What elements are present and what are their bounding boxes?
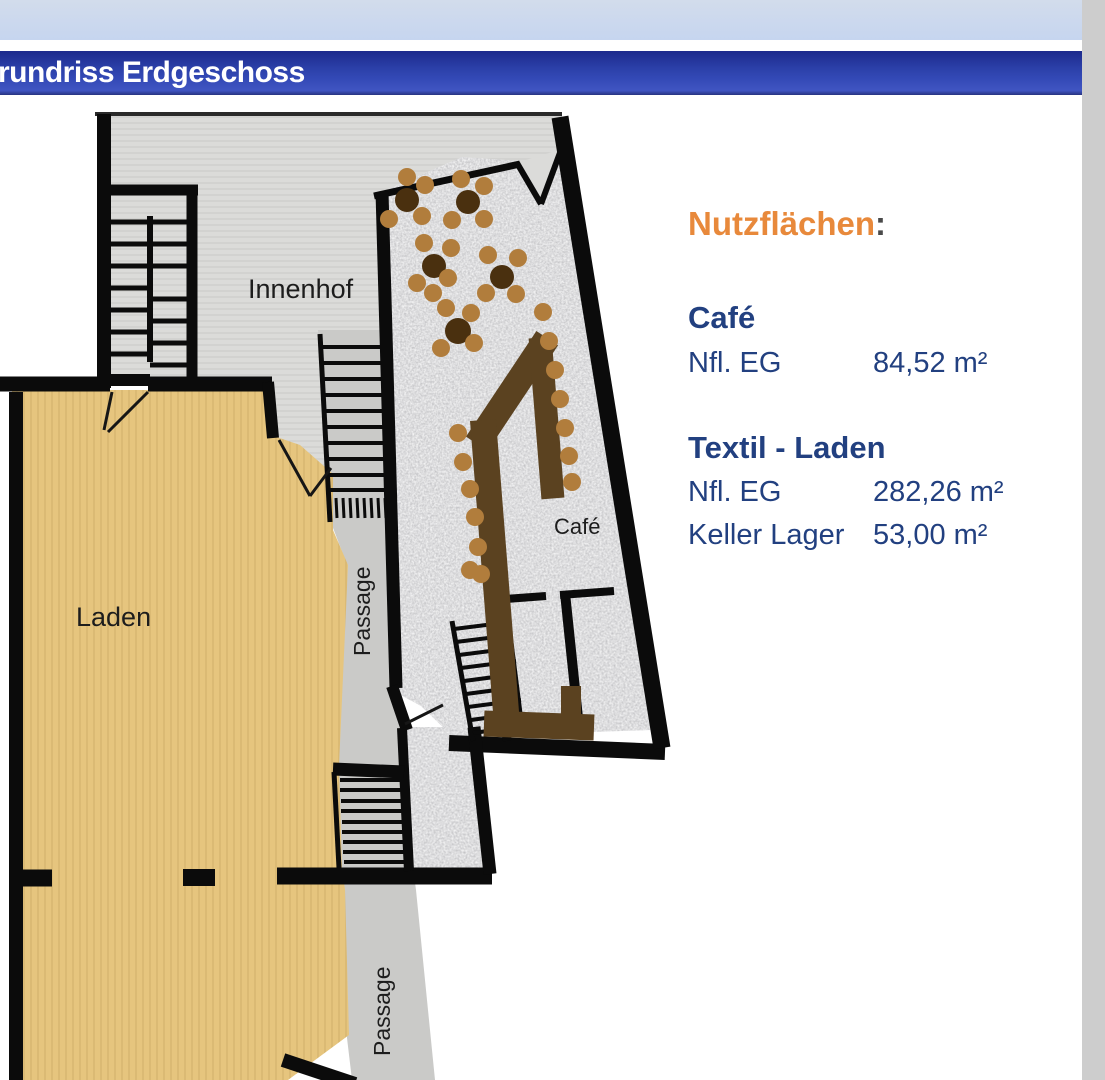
document-page: rundriss Erdgeschoss <box>0 0 1105 1080</box>
area-row: Nfl. EG 84,52 m² <box>688 347 781 380</box>
area-label: Nfl. EG <box>688 347 781 379</box>
shop-area <box>12 390 349 1080</box>
label-passage-upper: Passage <box>349 566 375 656</box>
panel-heading-colon: : <box>875 205 886 242</box>
area-row: Keller Lager 53,00 m² <box>688 519 844 552</box>
area-row: Nfl. EG 282,26 m² <box>688 476 781 509</box>
area-label: Keller Lager <box>688 519 844 551</box>
area-label: Nfl. EG <box>688 476 781 508</box>
area-value: 53,00 m² <box>873 519 987 552</box>
section-title-textil-laden: Textil - Laden <box>688 430 886 466</box>
section-title-cafe: Café <box>688 300 755 336</box>
right-page-margin <box>1082 0 1105 1080</box>
panel-heading-text: Nutzflächen <box>688 205 875 242</box>
label-passage-lower: Passage <box>369 966 395 1056</box>
panel-heading: Nutzflächen: <box>688 205 886 243</box>
label-laden: Laden <box>76 602 151 632</box>
label-cafe: Café <box>554 514 600 539</box>
label-innenhof: Innenhof <box>248 274 354 304</box>
area-value: 282,26 m² <box>873 476 1004 509</box>
area-value: 84,52 m² <box>873 347 987 380</box>
